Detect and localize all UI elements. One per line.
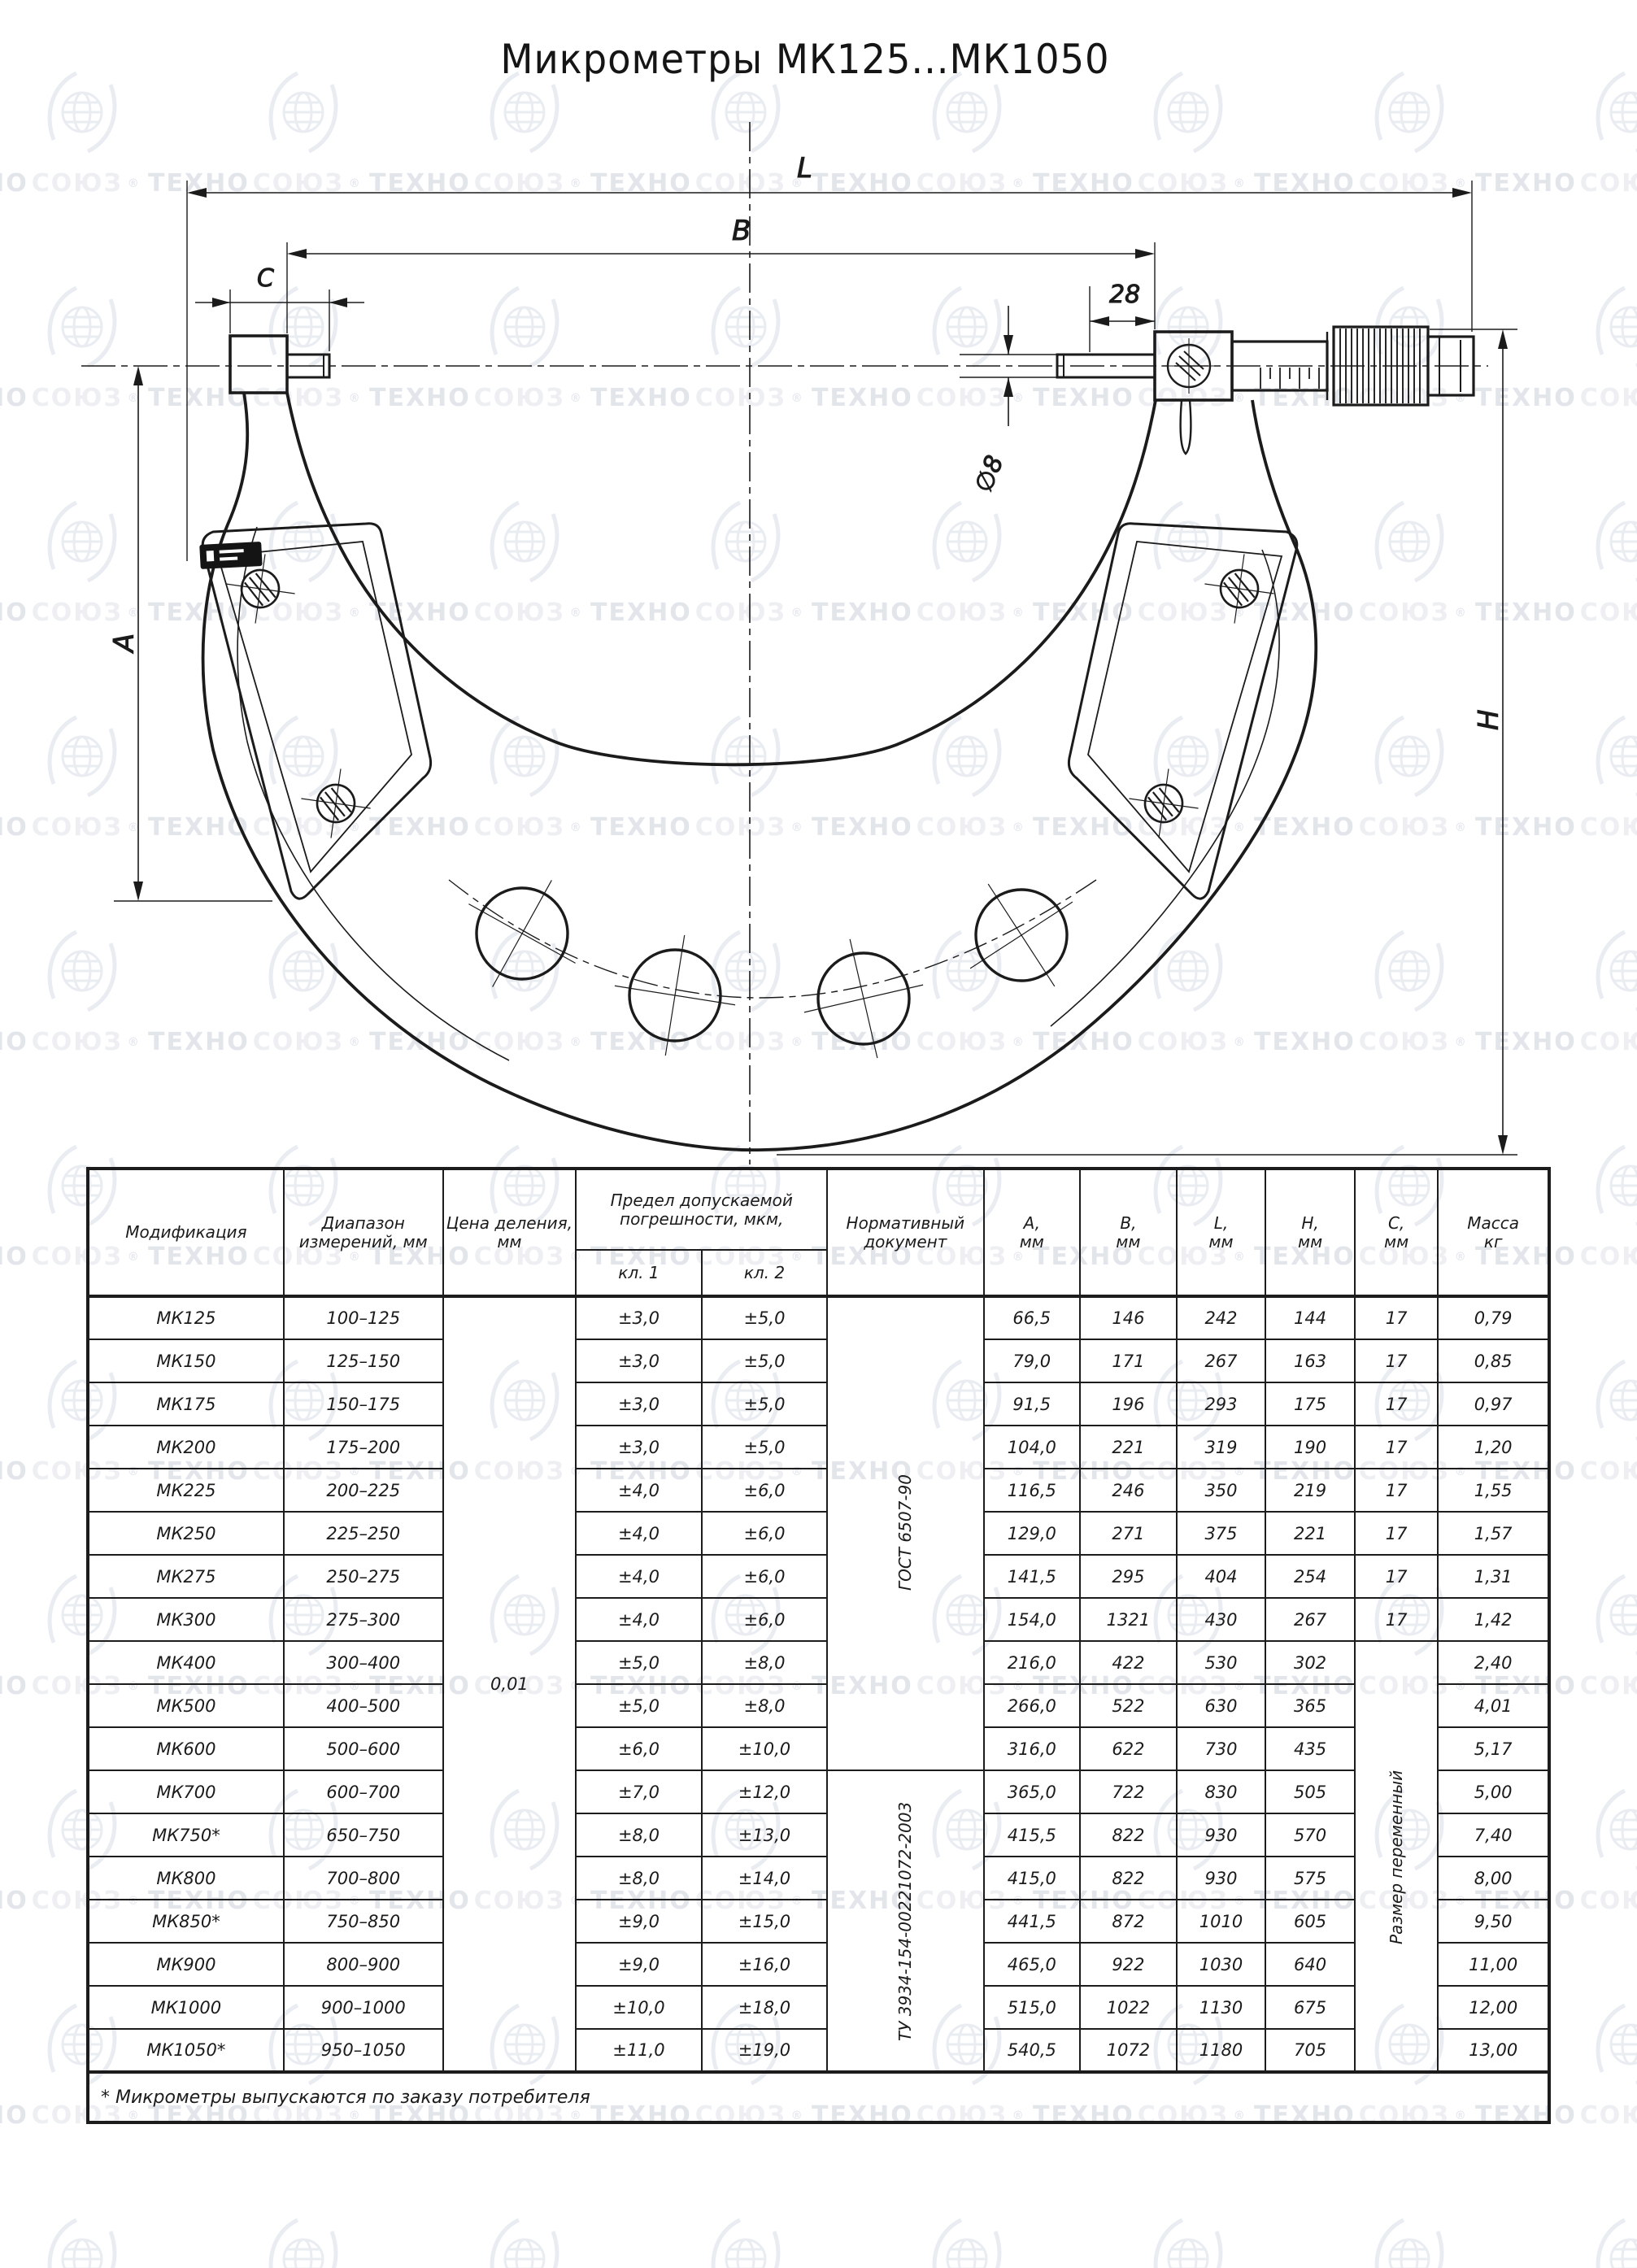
cell-class2: ±14,0 xyxy=(702,1857,828,1900)
cell-class2: ±19,0 xyxy=(702,2029,828,2072)
cell-a: 141,5 xyxy=(984,1555,1081,1598)
cell-h: 705 xyxy=(1265,2029,1355,2072)
dim-label-L: L xyxy=(797,152,812,185)
cell-class2: ±8,0 xyxy=(702,1641,828,1684)
cell-b: 246 xyxy=(1080,1469,1177,1512)
cell-h: 575 xyxy=(1265,1857,1355,1900)
cell-class2: ±16,0 xyxy=(702,1943,828,1986)
cell-mass: 9,50 xyxy=(1438,1900,1549,1943)
anvil-block xyxy=(230,336,287,393)
cell-c: 17 xyxy=(1355,1598,1438,1641)
table-row: МК1000900–1000±10,0±18,0515,010221130675… xyxy=(88,1986,1549,2029)
table-row: МК800700–800±8,0±14,0415,08229305758,00 xyxy=(88,1857,1549,1900)
cell-model: МК175 xyxy=(88,1382,284,1426)
cell-c: 17 xyxy=(1355,1512,1438,1555)
cell-range: 175–200 xyxy=(284,1426,443,1469)
dim-label-H: H xyxy=(1473,709,1505,730)
hole-centerlines xyxy=(439,851,1106,1072)
insulating-plate-right xyxy=(1069,524,1296,899)
cell-model: МК250 xyxy=(88,1512,284,1555)
cell-range: 125–150 xyxy=(284,1339,443,1382)
cell-class1: ±9,0 xyxy=(576,1943,702,1986)
cell-mass: 2,40 xyxy=(1438,1641,1549,1684)
cell-h: 144 xyxy=(1265,1296,1355,1339)
cell-a: 216,0 xyxy=(984,1641,1081,1684)
cell-model: МК150 xyxy=(88,1339,284,1382)
globe-watermark-icon xyxy=(259,2209,348,2268)
cell-a: 316,0 xyxy=(984,1727,1081,1770)
header-dim-l: L,мм xyxy=(1177,1169,1266,1296)
table-row: МК225200–225±4,0±6,0116,5246350219171,55 xyxy=(88,1469,1549,1512)
table-body: МК125100–1250,01±3,0±5,0ГОСТ 6507-9066,5… xyxy=(88,1296,1549,2072)
cell-a: 465,0 xyxy=(984,1943,1081,1986)
lock-lever xyxy=(1161,338,1217,454)
cell-l: 1030 xyxy=(1177,1943,1266,1986)
cell-h: 175 xyxy=(1265,1382,1355,1426)
cell-b: 922 xyxy=(1080,1943,1177,1986)
table-row: МК700600–700±7,0±12,0ТУ 3934-154-0022107… xyxy=(88,1770,1549,1813)
cell-class2: ±12,0 xyxy=(702,1770,828,1813)
cell-range: 100–125 xyxy=(284,1296,443,1339)
cell-a: 129,0 xyxy=(984,1512,1081,1555)
cell-class2: ±10,0 xyxy=(702,1727,828,1770)
cell-h: 254 xyxy=(1265,1555,1355,1598)
cell-model: МК125 xyxy=(88,1296,284,1339)
globe-watermark-icon xyxy=(1586,2209,1637,2268)
extension-lines xyxy=(114,181,1517,1155)
header-dim-c: C,мм xyxy=(1355,1169,1438,1296)
cell-l: 350 xyxy=(1177,1469,1266,1512)
dim-label-C: C xyxy=(257,264,274,293)
cell-model: МК300 xyxy=(88,1598,284,1641)
footnote-row: * Микрометры выпускаются по заказу потре… xyxy=(88,2072,1549,2122)
cell-c-variable: Размер переменный xyxy=(1355,1641,1438,2072)
cell-range: 400–500 xyxy=(284,1684,443,1727)
watermark-tile xyxy=(1586,2209,1637,2268)
watermark-tile xyxy=(1586,1994,1637,2092)
cell-b: 271 xyxy=(1080,1512,1177,1555)
cell-l: 830 xyxy=(1177,1770,1266,1813)
cell-b: 146 xyxy=(1080,1296,1177,1339)
cell-class1: ±4,0 xyxy=(576,1598,702,1641)
header-norm: Нормативный документ xyxy=(827,1169,983,1296)
cell-model: МК750* xyxy=(88,1813,284,1857)
cell-a: 365,0 xyxy=(984,1770,1081,1813)
cell-range: 250–275 xyxy=(284,1555,443,1598)
cell-l: 319 xyxy=(1177,1426,1266,1469)
cell-b: 196 xyxy=(1080,1382,1177,1426)
cell-mass: 11,00 xyxy=(1438,1943,1549,1986)
watermark-tile xyxy=(1365,2209,1454,2268)
cell-h: 163 xyxy=(1265,1339,1355,1382)
cell-range: 600–700 xyxy=(284,1770,443,1813)
cell-class2: ±6,0 xyxy=(702,1512,828,1555)
cell-h: 505 xyxy=(1265,1770,1355,1813)
cell-h: 570 xyxy=(1265,1813,1355,1857)
watermark-tile xyxy=(1586,1779,1637,1877)
cell-range: 150–175 xyxy=(284,1382,443,1426)
cell-a: 266,0 xyxy=(984,1684,1081,1727)
dim-label-B: B xyxy=(732,215,751,247)
header-division: Цена деления, мм xyxy=(443,1169,577,1296)
cell-model: МК1000 xyxy=(88,1986,284,2029)
watermark-tile xyxy=(1586,1565,1637,1662)
cell-c: 17 xyxy=(1355,1555,1438,1598)
header-dim-b: B,мм xyxy=(1080,1169,1177,1296)
cell-class1: ±9,0 xyxy=(576,1900,702,1943)
table-row: МК400300–400±5,0±8,0216,0422530302Размер… xyxy=(88,1641,1549,1684)
cell-c: 17 xyxy=(1355,1469,1438,1512)
cell-model: МК700 xyxy=(88,1770,284,1813)
header-mass: Массакг xyxy=(1438,1169,1549,1296)
watermark-tile xyxy=(37,2209,127,2268)
cell-model: МК400 xyxy=(88,1641,284,1684)
cell-class1: ±5,0 xyxy=(576,1684,702,1727)
cell-model: МК500 xyxy=(88,1684,284,1727)
cell-l: 293 xyxy=(1177,1382,1266,1426)
cell-mass: 0,79 xyxy=(1438,1296,1549,1339)
cell-model: МК1050* xyxy=(88,2029,284,2072)
frame-inner-edge xyxy=(287,393,1156,764)
cell-b: 1022 xyxy=(1080,1986,1177,2029)
cell-mass: 7,40 xyxy=(1438,1813,1549,1857)
cell-mass: 0,85 xyxy=(1438,1339,1549,1382)
cell-h: 190 xyxy=(1265,1426,1355,1469)
cell-l: 1180 xyxy=(1177,2029,1266,2072)
cell-range: 500–600 xyxy=(284,1727,443,1770)
dim-label-A: A xyxy=(108,633,141,654)
cell-range: 275–300 xyxy=(284,1598,443,1641)
cell-b: 722 xyxy=(1080,1770,1177,1813)
cell-a: 79,0 xyxy=(984,1339,1081,1382)
cell-mass: 1,20 xyxy=(1438,1426,1549,1469)
cell-class1: ±11,0 xyxy=(576,2029,702,2072)
table-row: МК1050*950–1050±11,0±19,0540,51072118070… xyxy=(88,2029,1549,2072)
cell-range: 900–1000 xyxy=(284,1986,443,2029)
header-class2: кл. 2 xyxy=(702,1250,828,1296)
cell-mass: 5,00 xyxy=(1438,1770,1549,1813)
cell-a: 515,0 xyxy=(984,1986,1081,2029)
cell-c: 17 xyxy=(1355,1339,1438,1382)
cell-h: 675 xyxy=(1265,1986,1355,2029)
cell-class1: ±4,0 xyxy=(576,1555,702,1598)
cell-range: 300–400 xyxy=(284,1641,443,1684)
header-range: Диапазон измерений, мм xyxy=(284,1169,443,1296)
cell-l: 430 xyxy=(1177,1598,1266,1641)
cell-class1: ±4,0 xyxy=(576,1469,702,1512)
lightening-holes xyxy=(477,888,1067,1044)
table-row: МК125100–1250,01±3,0±5,0ГОСТ 6507-9066,5… xyxy=(88,1296,1549,1339)
globe-watermark-icon xyxy=(37,2209,127,2268)
cell-class1: ±6,0 xyxy=(576,1727,702,1770)
cell-model: МК850* xyxy=(88,1900,284,1943)
cell-mass: 4,01 xyxy=(1438,1684,1549,1727)
header-class1: кл. 1 xyxy=(576,1250,702,1296)
micrometer-drawing: L B C 28 ∅8 A H xyxy=(0,0,1637,1175)
cell-norm-gost: ГОСТ 6507-90 xyxy=(827,1296,983,1770)
cell-model: МК225 xyxy=(88,1469,284,1512)
cell-l: 630 xyxy=(1177,1684,1266,1727)
cell-l: 404 xyxy=(1177,1555,1266,1598)
table-row: МК750*650–750±8,0±13,0415,58229305707,40 xyxy=(88,1813,1549,1857)
cell-range: 200–225 xyxy=(284,1469,443,1512)
cell-l: 930 xyxy=(1177,1857,1266,1900)
cell-b: 422 xyxy=(1080,1641,1177,1684)
cell-b: 1072 xyxy=(1080,2029,1177,2072)
cell-b: 622 xyxy=(1080,1727,1177,1770)
cell-h: 267 xyxy=(1265,1598,1355,1641)
cell-class1: ±8,0 xyxy=(576,1813,702,1857)
cell-class2: ±5,0 xyxy=(702,1382,828,1426)
barrel-scale-ticks xyxy=(1260,368,1319,389)
cell-a: 441,5 xyxy=(984,1900,1081,1943)
globe-watermark-icon xyxy=(1586,1350,1637,1447)
cell-h: 219 xyxy=(1265,1469,1355,1512)
table-row: МК900800–900±9,0±16,0465,0922103064011,0… xyxy=(88,1943,1549,1986)
cell-b: 1321 xyxy=(1080,1598,1177,1641)
globe-watermark-icon xyxy=(480,2209,569,2268)
globe-watermark-icon xyxy=(922,2209,1012,2268)
frame-outer-edge xyxy=(203,393,1317,1150)
cell-range: 650–750 xyxy=(284,1813,443,1857)
table-row: МК150125–150±3,0±5,079,0171267163170,85 xyxy=(88,1339,1549,1382)
table-row: МК200175–200±3,0±5,0104,0221319190171,20 xyxy=(88,1426,1549,1469)
watermark-tile xyxy=(1586,1350,1637,1447)
cell-range: 750–850 xyxy=(284,1900,443,1943)
cell-c: 17 xyxy=(1355,1296,1438,1339)
cell-l: 1010 xyxy=(1177,1900,1266,1943)
cell-l: 530 xyxy=(1177,1641,1266,1684)
globe-watermark-icon xyxy=(1586,1994,1637,2092)
cell-division-value: 0,01 xyxy=(443,1296,577,2072)
cell-range: 700–800 xyxy=(284,1857,443,1900)
header-error: Предел допускаемой погрешности, мкм, xyxy=(576,1169,827,1250)
cell-b: 822 xyxy=(1080,1857,1177,1900)
cell-a: 415,5 xyxy=(984,1813,1081,1857)
table-row: МК600500–600±6,0±10,0316,06227304355,17 xyxy=(88,1727,1549,1770)
cell-a: 66,5 xyxy=(984,1296,1081,1339)
cell-h: 605 xyxy=(1265,1900,1355,1943)
cell-a: 91,5 xyxy=(984,1382,1081,1426)
header-dim-a: A,мм xyxy=(984,1169,1081,1296)
watermark-tile xyxy=(259,2209,348,2268)
cell-l: 730 xyxy=(1177,1727,1266,1770)
table-row: МК850*750–850±9,0±15,0441,587210106059,5… xyxy=(88,1900,1549,1943)
cell-h: 221 xyxy=(1265,1512,1355,1555)
cell-class1: ±3,0 xyxy=(576,1382,702,1426)
cell-class2: ±18,0 xyxy=(702,1986,828,2029)
cell-b: 822 xyxy=(1080,1813,1177,1857)
dim-label-28: 28 xyxy=(1109,281,1140,309)
cell-b: 295 xyxy=(1080,1555,1177,1598)
globe-watermark-icon xyxy=(1586,1779,1637,1877)
cell-class2: ±15,0 xyxy=(702,1900,828,1943)
cell-b: 522 xyxy=(1080,1684,1177,1727)
cell-class1: ±4,0 xyxy=(576,1512,702,1555)
cell-class1: ±7,0 xyxy=(576,1770,702,1813)
drawing-area: Микрометры МК125...МК1050 xyxy=(0,0,1637,1175)
cell-a: 540,5 xyxy=(984,2029,1081,2072)
cell-a: 415,0 xyxy=(984,1857,1081,1900)
cell-h: 435 xyxy=(1265,1727,1355,1770)
watermark-tile xyxy=(1143,2209,1233,2268)
cell-l: 267 xyxy=(1177,1339,1266,1382)
cell-mass: 0,97 xyxy=(1438,1382,1549,1426)
dimension-lines xyxy=(138,193,1503,1137)
cell-class1: ±3,0 xyxy=(576,1339,702,1382)
cell-l: 930 xyxy=(1177,1813,1266,1857)
table-row: МК300275–300±4,0±6,0154,01321430267171,4… xyxy=(88,1598,1549,1641)
cell-b: 221 xyxy=(1080,1426,1177,1469)
cell-range: 225–250 xyxy=(284,1512,443,1555)
cell-class2: ±13,0 xyxy=(702,1813,828,1857)
cell-mass: 5,17 xyxy=(1438,1727,1549,1770)
cell-mass: 1,57 xyxy=(1438,1512,1549,1555)
cell-model: МК275 xyxy=(88,1555,284,1598)
cell-model: МК600 xyxy=(88,1727,284,1770)
globe-watermark-icon xyxy=(1586,1565,1637,1662)
cell-a: 104,0 xyxy=(984,1426,1081,1469)
cell-l: 1130 xyxy=(1177,1986,1266,2029)
globe-watermark-icon xyxy=(1365,2209,1454,2268)
cell-class1: ±3,0 xyxy=(576,1296,702,1339)
cell-l: 375 xyxy=(1177,1512,1266,1555)
table-row: МК275250–275±4,0±6,0141,5295404254171,31 xyxy=(88,1555,1549,1598)
cell-b: 872 xyxy=(1080,1900,1177,1943)
cell-class1: ±10,0 xyxy=(576,1986,702,2029)
cell-h: 365 xyxy=(1265,1684,1355,1727)
cell-class2: ±6,0 xyxy=(702,1555,828,1598)
cell-mass: 8,00 xyxy=(1438,1857,1549,1900)
table-header: Модификация Диапазон измерений, мм Цена … xyxy=(88,1169,1549,1296)
cell-class2: ±8,0 xyxy=(702,1684,828,1727)
header-modification: Модификация xyxy=(88,1169,284,1296)
spec-table: Модификация Диапазон измерений, мм Цена … xyxy=(86,1167,1551,2124)
cell-c: 17 xyxy=(1355,1382,1438,1426)
cell-class2: ±5,0 xyxy=(702,1296,828,1339)
watermark-tile xyxy=(480,2209,569,2268)
globe-watermark-icon xyxy=(1143,2209,1233,2268)
cell-model: МК200 xyxy=(88,1426,284,1469)
holes-pitch-arc xyxy=(449,880,1096,998)
frame-edge-detail-left xyxy=(237,527,509,1060)
knurl-lines xyxy=(1340,329,1420,403)
cell-l: 242 xyxy=(1177,1296,1266,1339)
cell-a: 154,0 xyxy=(984,1598,1081,1641)
cell-class1: ±3,0 xyxy=(576,1426,702,1469)
cell-model: МК800 xyxy=(88,1857,284,1900)
brand-plate xyxy=(199,542,262,569)
cell-b: 171 xyxy=(1080,1339,1177,1382)
cell-norm-tu: ТУ 3934-154-00221072-2003 xyxy=(827,1770,983,2072)
cell-mass: 1,31 xyxy=(1438,1555,1549,1598)
spec-table-container: Модификация Диапазон измерений, мм Цена … xyxy=(86,1167,1551,2124)
cell-c: 17 xyxy=(1355,1426,1438,1469)
cell-class1: ±8,0 xyxy=(576,1857,702,1900)
cell-mass: 12,00 xyxy=(1438,1986,1549,2029)
cell-class1: ±5,0 xyxy=(576,1641,702,1684)
cell-mass: 1,42 xyxy=(1438,1598,1549,1641)
table-row: МК500400–500±5,0±8,0266,05226303654,01 xyxy=(88,1684,1549,1727)
cell-range: 950–1050 xyxy=(284,2029,443,2072)
table-footnote: * Микрометры выпускаются по заказу потре… xyxy=(88,2072,1549,2122)
globe-watermark-icon xyxy=(701,2209,790,2268)
cell-class2: ±6,0 xyxy=(702,1598,828,1641)
cell-range: 800–900 xyxy=(284,1943,443,1986)
table-row: МК250225–250±4,0±6,0129,0271375221171,57 xyxy=(88,1512,1549,1555)
cell-class2: ±5,0 xyxy=(702,1339,828,1382)
table-row: МК175150–175±3,0±5,091,5196293175170,97 xyxy=(88,1382,1549,1426)
cell-model: МК900 xyxy=(88,1943,284,1986)
insulating-plate-left xyxy=(202,524,430,899)
cell-h: 302 xyxy=(1265,1641,1355,1684)
cell-class2: ±6,0 xyxy=(702,1469,828,1512)
cell-mass: 13,00 xyxy=(1438,2029,1549,2072)
cell-class2: ±5,0 xyxy=(702,1426,828,1469)
cell-h: 640 xyxy=(1265,1943,1355,1986)
cell-mass: 1,55 xyxy=(1438,1469,1549,1512)
dim-label-dia8: ∅8 xyxy=(969,451,1009,496)
header-dim-h: H,мм xyxy=(1265,1169,1355,1296)
watermark-tile xyxy=(922,2209,1012,2268)
watermark-tile xyxy=(701,2209,790,2268)
cell-a: 116,5 xyxy=(984,1469,1081,1512)
